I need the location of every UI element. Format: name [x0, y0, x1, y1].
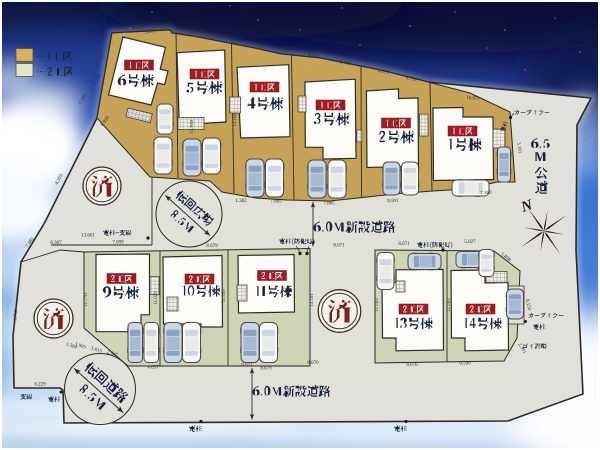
svg-text:1.382: 1.382 [235, 199, 247, 204]
svg-text:15.939: 15.939 [190, 120, 195, 134]
svg-text:7.360: 7.360 [480, 191, 492, 197]
svg-text:6.307: 6.307 [50, 241, 62, 246]
svg-text:7.865: 7.865 [323, 202, 335, 207]
svg-text:11.593: 11.593 [222, 289, 227, 303]
svg-text:4.037: 4.037 [147, 366, 159, 371]
svg-text:8.671: 8.671 [241, 363, 253, 368]
svg-text:6.229: 6.229 [34, 383, 46, 388]
svg-text:7.699: 7.699 [112, 241, 124, 246]
svg-text:8.671: 8.671 [333, 244, 345, 249]
svg-text:13.166: 13.166 [233, 113, 238, 127]
svg-text:11.593: 11.593 [375, 298, 380, 312]
svg-text:11.770: 11.770 [84, 293, 89, 307]
svg-text:5.027: 5.027 [464, 240, 476, 245]
svg-text:13.661: 13.661 [81, 234, 95, 239]
svg-text:13.101: 13.101 [310, 293, 315, 307]
svg-text:8.671: 8.671 [398, 242, 410, 247]
svg-text:8.679: 8.679 [206, 244, 218, 249]
svg-text:8.670: 8.670 [406, 363, 418, 368]
svg-text:7.106: 7.106 [191, 27, 203, 33]
svg-text:8.679: 8.679 [260, 367, 272, 372]
svg-text:8.591: 8.591 [387, 199, 399, 204]
svg-text:8.670: 8.670 [307, 361, 319, 366]
svg-text:11.029: 11.029 [154, 291, 159, 305]
svg-text:9.719: 9.719 [14, 309, 19, 321]
svg-text:6.590: 6.590 [459, 362, 471, 367]
svg-text:11.593: 11.593 [447, 298, 452, 312]
svg-text:7.865: 7.865 [270, 200, 282, 205]
